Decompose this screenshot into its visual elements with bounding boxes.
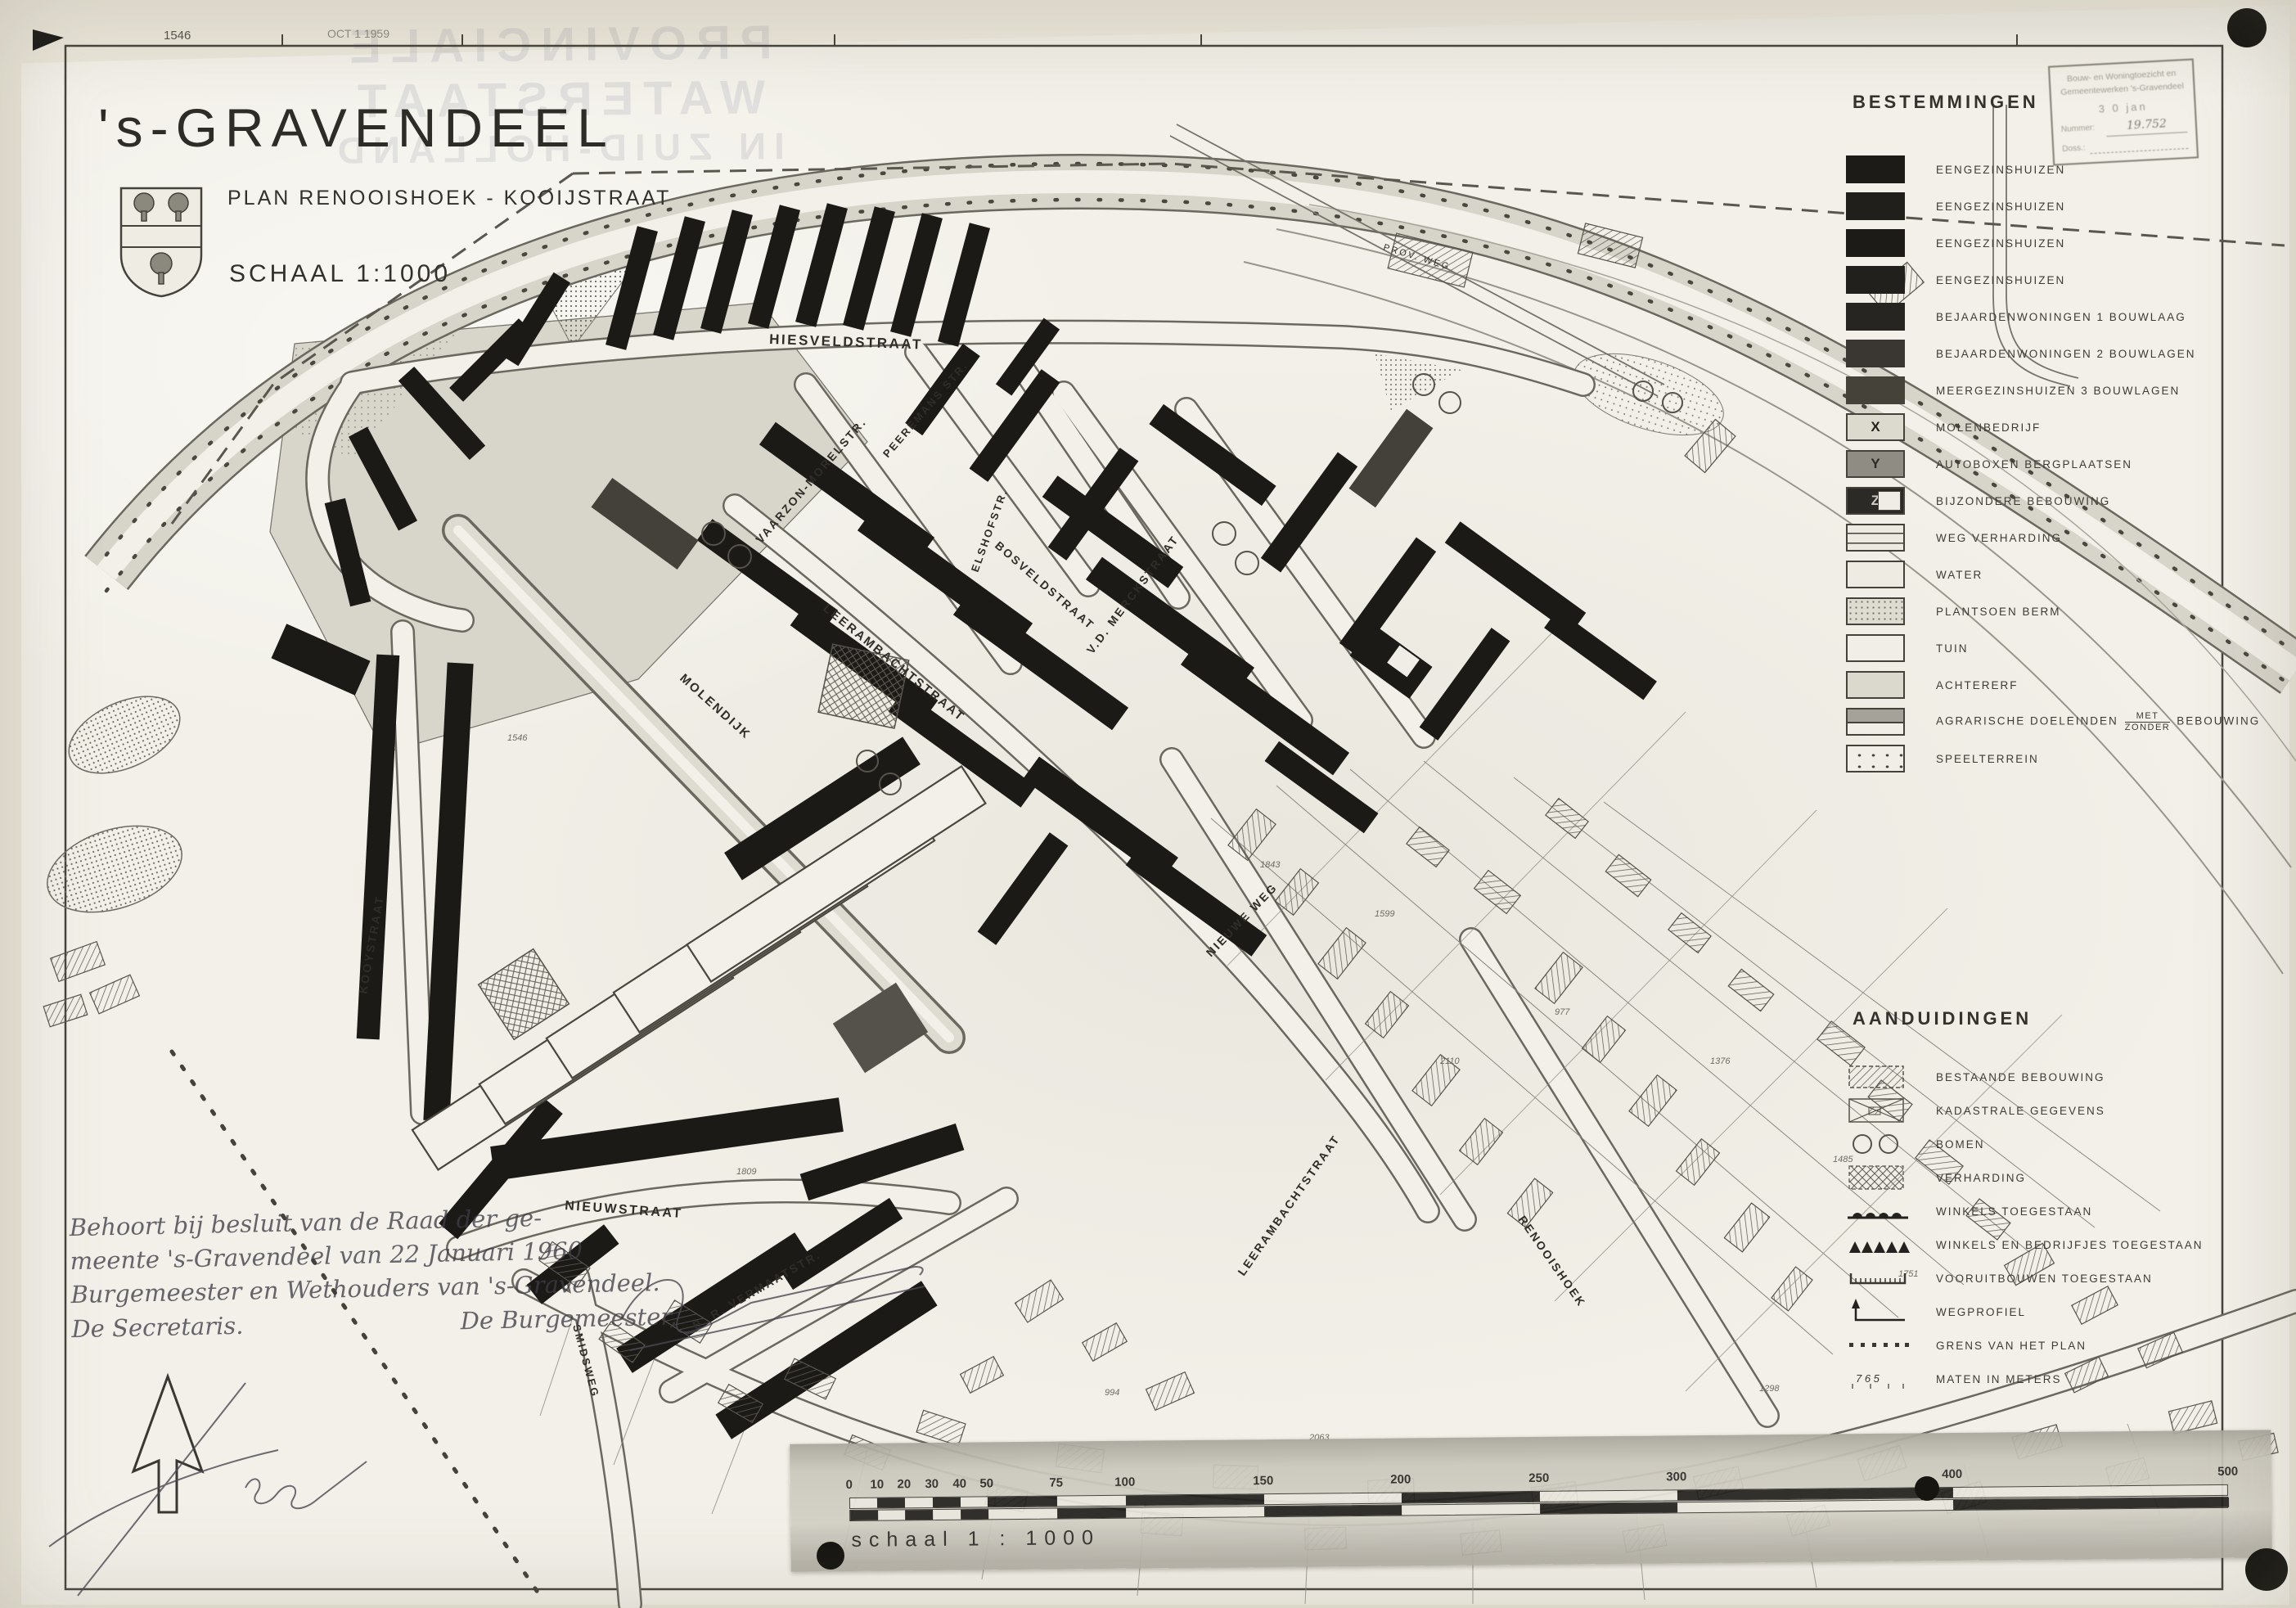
swatch-water xyxy=(1846,561,1905,588)
legend-aanduidingen: AANDUIDINGEN BESTAANDE BEBOUWING KADASTR… xyxy=(1846,1008,2294,1398)
north-arrow xyxy=(133,1376,202,1512)
legend-item: BEJAARDENWONINGEN 2 BOUWLAGEN xyxy=(1846,340,2294,367)
legend-item: EENGEZINSHUIZEN xyxy=(1846,192,2294,220)
map-scale-label: SCHAAL 1:1000 xyxy=(229,260,451,288)
legend-item: AGRARISCHE DOELEINDENMETZONDERBEBOUWING xyxy=(1846,708,2294,736)
swatch-bestaande-bebouwing xyxy=(1846,1061,1911,1093)
photo-punch-hole xyxy=(817,1542,844,1570)
swatch-speelterrein xyxy=(1846,745,1905,772)
swatch-bomen xyxy=(1846,1128,1911,1160)
legend-item: 7 6 5 MATEN IN METERS xyxy=(1846,1364,2294,1394)
street-renooishoek: RENOOISHOEK xyxy=(1516,1214,1589,1310)
swatch-bejaardenwoningen-1 xyxy=(1846,303,1905,331)
scale-tick: 500 xyxy=(2217,1465,2238,1479)
note-burgemeester: De Burgemeester, xyxy=(460,1299,677,1338)
parcel-number: 994 xyxy=(1105,1388,1119,1398)
scale-tick: 300 xyxy=(1666,1470,1686,1484)
legend-aanduidingen-title: AANDUIDINGEN xyxy=(1853,1008,2294,1029)
swatch-wegprofiel xyxy=(1846,1295,1911,1328)
photo-background: PROVINCIALE WATERSTAAT IN ZUID-HOLLAND 1… xyxy=(0,0,2296,1608)
swatch-tuin xyxy=(1846,634,1905,662)
street-molendijk: MOLENDIJK xyxy=(677,671,754,742)
swatch-eengezinshuizen-1 xyxy=(1846,155,1905,183)
scanned-map-photo: { "title_block": { "town": "'s-GRAVENDEE… xyxy=(0,0,2296,1608)
legend-item: WINKELS TOEGESTAAN xyxy=(1846,1196,2294,1226)
title-block: 's-GRAVENDEEL xyxy=(98,97,615,159)
legend-item: GRENS VAN HET PLAN xyxy=(1846,1331,2294,1360)
legend-item: SPEELTERREIN xyxy=(1846,745,2294,772)
scale-tick: 250 xyxy=(1528,1471,1549,1485)
legend-item: WEGPROFIEL xyxy=(1846,1297,2294,1326)
sheet-ref-number: 1546 xyxy=(164,29,191,43)
swatch-eengezinshuizen-4 xyxy=(1846,266,1905,294)
scale-tick: 400 xyxy=(1942,1467,1962,1481)
scale-ruler: 0 10 20 30 40 50 75 100 150 200 250 300 … xyxy=(790,1430,2271,1571)
legend-item: EENGEZINSHUIZEN xyxy=(1846,229,2294,257)
scale-tick: 75 xyxy=(1049,1475,1063,1489)
sheet-date-mark: OCT 1 1959 xyxy=(327,27,389,40)
handwritten-approval-note: Behoort bij besluit van de Raad der ge- … xyxy=(69,1198,709,1346)
swatch-autoboxen: Y xyxy=(1846,450,1905,478)
parcel-number: 1843 xyxy=(1260,860,1281,870)
svg-text:7 6 5: 7 6 5 xyxy=(1856,1372,1880,1385)
legend-item: ZBIJZONDERE BEBOUWING xyxy=(1846,487,2294,515)
legend-item: PLANTSOEN BERM xyxy=(1846,597,2294,625)
scale-tick: 50 xyxy=(979,1476,993,1490)
photo-punch-hole xyxy=(2227,8,2267,47)
swatch-molenbedrijf: X xyxy=(1846,413,1905,441)
scale-bar: 0 10 20 30 40 50 75 100 150 200 250 300 … xyxy=(849,1484,2228,1522)
map-title: 's-GRAVENDEEL xyxy=(98,97,615,159)
swatch-grens-van-het-plan xyxy=(1846,1329,1911,1362)
scale-tick: 150 xyxy=(1253,1474,1273,1488)
scale-tick: 30 xyxy=(925,1477,939,1491)
coat-of-arms xyxy=(116,185,206,300)
legend-item: WEG VERHARDING xyxy=(1846,524,2294,552)
legend-item: BEJAARDENWONINGEN 1 BOUWLAAG xyxy=(1846,303,2294,331)
scale-tick: 40 xyxy=(952,1477,966,1491)
swatch-achtererf xyxy=(1846,671,1905,699)
legend-item: BESTAANDE BEBOUWING xyxy=(1846,1062,2294,1092)
photo-corner-mark xyxy=(33,29,64,51)
photo-punch-hole xyxy=(1915,1476,1939,1501)
legend-item: WINKELS EN BEDRIJFJES TOEGESTAAN xyxy=(1846,1230,2294,1259)
swatch-eengezinshuizen-2 xyxy=(1846,192,1905,220)
photo-punch-hole xyxy=(2245,1548,2288,1591)
swatch-vooruitbouwen xyxy=(1846,1262,1911,1295)
note-secretaris: De Secretaris. xyxy=(71,1308,244,1346)
legend-item: TUIN xyxy=(1846,634,2294,662)
parcel-number: 1546 xyxy=(507,733,528,743)
legend-item: ACHTERERF xyxy=(1846,671,2294,699)
legend-item: KADASTRALE GEGEVENS xyxy=(1846,1096,2294,1125)
parcel-number: 1599 xyxy=(1375,909,1394,919)
swatch-kadastrale-gegevens xyxy=(1846,1094,1911,1127)
parcel-number: 1298 xyxy=(1759,1384,1780,1394)
swatch-plantsoen-berm xyxy=(1846,597,1905,625)
swatch-weg-verharding xyxy=(1846,524,1905,552)
legend-item: VERHARDING xyxy=(1846,1163,2294,1192)
scale-caption: schaal 1 : 1000 xyxy=(851,1526,1101,1552)
legend-item: EENGEZINSHUIZEN xyxy=(1846,266,2294,294)
swatch-maten-in-meters: 7 6 5 xyxy=(1846,1363,1911,1395)
legend-item: YAUTOBOXEN BERGPLAATSEN xyxy=(1846,450,2294,478)
swatch-verharding xyxy=(1846,1161,1911,1194)
parcel-number: 2110 xyxy=(1439,1056,1461,1066)
parcel-number: 1809 xyxy=(736,1167,756,1177)
legend-item: VOORUITBOUWEN TOEGESTAAN xyxy=(1846,1263,2294,1293)
parcel-number: 977 xyxy=(1555,1007,1570,1017)
swatch-eengezinshuizen-3 xyxy=(1846,229,1905,257)
swatch-winkels-toegestaan xyxy=(1846,1195,1911,1227)
legend-item: XMOLENBEDRIJF xyxy=(1846,413,2294,441)
legend-item: BOMEN xyxy=(1846,1129,2294,1159)
swatch-bejaardenwoningen-2 xyxy=(1846,340,1905,367)
scale-tick: 10 xyxy=(870,1478,884,1492)
scale-tick: 0 xyxy=(846,1478,853,1492)
street-leerambacht2: LEERAMBACHTSTRAAT xyxy=(1235,1133,1342,1278)
swatch-winkels-bedrijfjes xyxy=(1846,1228,1911,1261)
map-subtitle: PLAN RENOOISHOEK - KOOIJSTRAAT xyxy=(227,187,671,210)
scale-tick: 200 xyxy=(1390,1472,1411,1486)
legend-bestemmingen: BESTEMMINGEN EENGEZINSHUIZEN EENGEZINSHU… xyxy=(1846,92,2294,781)
scale-tick: 100 xyxy=(1114,1475,1135,1489)
parcel-number: 1376 xyxy=(1710,1056,1731,1066)
swatch-bijzondere-bebouwing: Z xyxy=(1846,487,1905,515)
legend-item: WATER xyxy=(1846,561,2294,588)
scale-tick: 20 xyxy=(897,1477,911,1491)
swatch-meergezinshuizen xyxy=(1846,376,1905,404)
swatch-agrarische-doeleinden xyxy=(1846,708,1905,736)
legend-item: MEERGEZINSHUIZEN 3 BOUWLAGEN xyxy=(1846,376,2294,404)
legend-bestemmingen-title: BESTEMMINGEN xyxy=(1853,92,2294,113)
street-elshof: ELSHOFSTR. xyxy=(969,487,1011,574)
legend-item: EENGEZINSHUIZEN xyxy=(1846,155,2294,183)
